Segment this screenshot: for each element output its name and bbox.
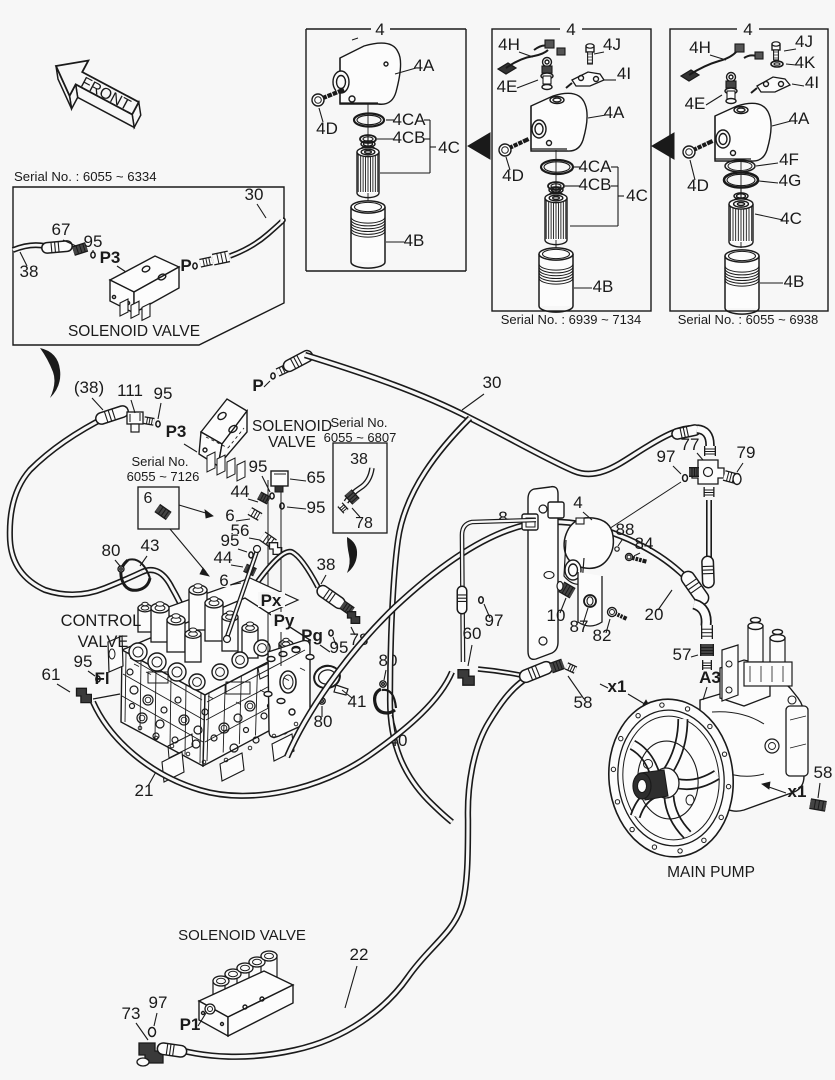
svg-text:38: 38: [317, 555, 336, 574]
svg-text:77: 77: [681, 435, 700, 454]
svg-text:VALVE: VALVE: [78, 633, 129, 651]
svg-text:10: 10: [547, 606, 566, 625]
svg-text:44: 44: [231, 482, 250, 501]
svg-text:88: 88: [616, 520, 635, 539]
svg-text:43: 43: [141, 536, 160, 555]
svg-text:4E: 4E: [497, 77, 518, 96]
svg-text:4K: 4K: [795, 53, 816, 72]
svg-text:8: 8: [498, 508, 507, 527]
svg-text:79: 79: [737, 443, 756, 462]
svg-text:41: 41: [348, 692, 367, 711]
svg-text:(38): (38): [74, 378, 104, 397]
svg-text:58: 58: [814, 763, 833, 782]
svg-text:22: 22: [350, 945, 369, 964]
svg-text:6055 ~ 7126: 6055 ~ 7126: [127, 469, 200, 484]
svg-text:111: 111: [117, 381, 143, 400]
svg-text:87: 87: [570, 617, 589, 636]
svg-text:95: 95: [307, 498, 326, 517]
svg-text:60: 60: [463, 624, 482, 643]
svg-text:CONTROL: CONTROL: [61, 612, 142, 630]
svg-text:4B: 4B: [593, 277, 614, 296]
svg-text:4C: 4C: [626, 186, 648, 205]
svg-text:6: 6: [219, 571, 228, 590]
svg-text:4CB: 4CB: [578, 175, 611, 194]
svg-text:4J: 4J: [603, 35, 621, 54]
svg-text:4D: 4D: [687, 176, 709, 195]
svg-text:4B: 4B: [784, 272, 805, 291]
svg-text:4: 4: [743, 20, 752, 39]
svg-text:MAIN PUMP: MAIN PUMP: [667, 864, 755, 881]
svg-text:4J: 4J: [795, 32, 813, 51]
svg-text:A3: A3: [699, 668, 721, 687]
svg-text:97: 97: [485, 611, 504, 630]
svg-text:58: 58: [574, 693, 593, 712]
svg-text:67: 67: [52, 220, 71, 239]
svg-text:SOLENOID VALVE: SOLENOID VALVE: [68, 323, 200, 340]
svg-text:Px: Px: [261, 591, 282, 610]
svg-text:20: 20: [645, 605, 664, 624]
svg-text:95: 95: [249, 457, 268, 476]
svg-text:80: 80: [102, 541, 121, 560]
svg-text:P3: P3: [100, 248, 121, 267]
svg-text:4I: 4I: [805, 73, 819, 92]
svg-text:x1: x1: [608, 677, 627, 696]
svg-text:4: 4: [566, 20, 575, 39]
svg-text:44: 44: [214, 548, 233, 567]
svg-text:4H: 4H: [689, 38, 711, 57]
svg-text:4: 4: [573, 493, 582, 512]
svg-text:4A: 4A: [414, 56, 435, 75]
svg-text:82: 82: [593, 626, 612, 645]
svg-text:4B: 4B: [404, 231, 425, 250]
svg-text:VALVE: VALVE: [268, 434, 316, 451]
svg-text:84: 84: [635, 534, 654, 553]
svg-text:97: 97: [657, 447, 676, 466]
svg-text:Py: Py: [274, 611, 295, 630]
svg-text:4CB: 4CB: [392, 128, 425, 147]
svg-text:73: 73: [122, 1004, 141, 1023]
svg-text:30: 30: [483, 373, 502, 392]
svg-text:P1: P1: [180, 1015, 201, 1034]
svg-text:78: 78: [355, 515, 373, 532]
svg-text:38: 38: [20, 262, 39, 281]
svg-text:95: 95: [154, 384, 173, 403]
svg-text:Serial No. : 6055 ~ 6334: Serial No. : 6055 ~ 6334: [14, 169, 157, 184]
svg-text:4A: 4A: [789, 109, 810, 128]
svg-text:30: 30: [245, 185, 264, 204]
svg-text:SOLENOID VALVE: SOLENOID VALVE: [178, 927, 306, 944]
svg-text:Pg: Pg: [301, 626, 323, 645]
svg-text:65: 65: [307, 468, 326, 487]
svg-text:4G: 4G: [779, 171, 802, 190]
svg-text:Serial No.: Serial No.: [330, 415, 387, 430]
svg-text:SOLENOID: SOLENOID: [252, 418, 332, 435]
svg-text:Serial No.: Serial No.: [131, 454, 188, 469]
svg-text:Serial No. : 6939 ~ 7134: Serial No. : 6939 ~ 7134: [501, 312, 642, 327]
svg-text:4H: 4H: [498, 35, 520, 54]
svg-text:4CA: 4CA: [392, 110, 426, 129]
svg-text:4C: 4C: [780, 209, 802, 228]
svg-text:80: 80: [314, 712, 333, 731]
svg-text:4: 4: [375, 20, 384, 39]
svg-text:6: 6: [144, 490, 153, 507]
svg-text:4C: 4C: [438, 138, 460, 157]
svg-text:38: 38: [350, 451, 368, 468]
svg-text:61: 61: [42, 665, 61, 684]
svg-text:4A: 4A: [604, 103, 625, 122]
svg-text:4I: 4I: [617, 64, 631, 83]
svg-text:4F: 4F: [779, 150, 799, 169]
svg-text:57: 57: [673, 645, 692, 664]
svg-text:21: 21: [135, 781, 154, 800]
svg-text:4E: 4E: [685, 94, 706, 113]
svg-text:P3: P3: [166, 422, 187, 441]
svg-text:Fl: Fl: [94, 669, 109, 688]
svg-text:x1: x1: [788, 782, 807, 801]
svg-text:P: P: [180, 256, 191, 275]
svg-text:4D: 4D: [502, 166, 524, 185]
svg-text:P: P: [252, 376, 263, 395]
svg-text:4CA: 4CA: [578, 157, 612, 176]
svg-text:95: 95: [74, 652, 93, 671]
svg-text:4D: 4D: [316, 119, 338, 138]
svg-text:95: 95: [330, 638, 349, 657]
svg-text:97: 97: [149, 993, 168, 1012]
